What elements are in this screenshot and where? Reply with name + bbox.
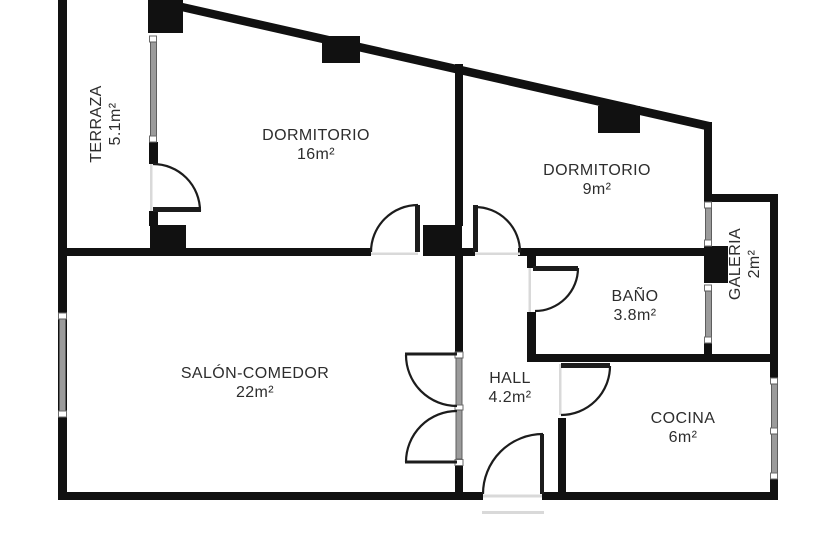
kitchen-window-cap-top [771,378,778,384]
wall-bedroom-divider [455,64,463,226]
gallery-window-lower-cap-bottom [705,337,712,343]
room-name: SALÓN-COMEDOR [181,364,329,383]
door-leaf-terraza [153,207,201,212]
door-arc-bedroom2 [475,207,520,252]
wall-hall-left-lower [455,465,463,500]
door-leaf-bathroom [533,266,578,271]
door-leaf-bedroom1 [415,205,420,252]
wall-main-horizontal-right [518,248,710,256]
terraza-window-cap-top [150,36,157,42]
floor-plan-drawing [0,0,835,540]
door-leaf-kitchen [561,363,610,368]
room-area: 6m² [651,428,716,447]
room-label-cocina: COCINA 6m² [651,409,716,447]
pillar-bedroom1-slant [322,36,360,63]
wall-main-horizontal-stub [455,248,475,256]
door-frame-lines-layer [150,164,562,514]
pillar-bedroom2-slant [598,106,640,133]
room-area: 16m² [262,145,370,164]
wall-main-horizontal-left [58,248,371,256]
wall-terraza-lower [149,211,158,226]
door-leaf-bedroom2 [473,205,478,252]
room-label-salon-comedor: SALÓN-COMEDOR 22m² [181,364,329,402]
salon-window-cap-bottom [59,411,67,417]
room-label-dormitorio-pequeno: DORMITORIO 9m² [543,161,651,199]
wall-hall-left-upper [455,256,463,354]
frame-line-bedroom2-opening [475,253,520,256]
gallery-window-upper-cap-bottom [705,240,712,246]
room-name: COCINA [651,409,716,428]
double-door-panel-top [456,358,462,405]
frame-line-kitchen-opening [559,364,562,415]
room-name: DORMITORIO [543,161,651,180]
entry-threshold-line [483,495,542,498]
wall-outer-bottom-right [542,492,778,500]
room-name: TERRAZA [87,85,106,162]
gallery-window-upper-cap-top [705,202,712,208]
door-arc-double-bottom [406,411,457,462]
terraza-window-cap-bottom [150,136,157,142]
gallery-window-upper [706,208,712,240]
kitchen-window-upper [772,384,778,428]
room-label-galeria: GALERIA 2m² [726,228,764,300]
door-leaf-double-bottom [405,461,457,464]
room-area: 2m² [745,228,764,300]
terraza-window [151,42,157,136]
kitchen-window-lower [772,434,778,473]
wall-bathroom-gallery-bottom [527,354,778,362]
room-area: 9m² [543,180,651,199]
salon-window [60,319,66,411]
wall-hall-kitchen [558,418,566,500]
room-label-hall: HALL 4.2m² [489,369,532,407]
door-arc-terraza [153,164,200,211]
room-area: 3.8m² [612,306,659,325]
wall-gallery-left-bottom [704,343,712,362]
gallery-window-lower-cap-top [705,285,712,291]
door-arc-bathroom [535,268,578,311]
room-name: DORMITORIO [262,126,370,145]
wall-terraza-upper [149,142,158,164]
frame-line-terraza-opening [150,164,153,211]
double-door-panel-bottom [456,410,462,459]
room-label-dormitorio-grande: DORMITORIO 16m² [262,126,370,164]
frame-line-bedroom1-opening [371,253,418,256]
room-name: HALL [489,369,532,388]
door-arc-entry [483,434,543,494]
room-label-terraza: TERRAZA 5.1m² [87,85,125,162]
wall-bedroom2-right [704,122,712,196]
salon-window-cap-top [59,313,67,319]
pillar-gallery [704,246,728,283]
kitchen-window-cap-bottom [771,473,778,479]
door-arc-bedroom1 [371,205,418,252]
kitchen-window-cap-middle [771,428,778,434]
door-leaf-entry [540,434,544,494]
entry-step-line [482,511,544,514]
pillar-terraza-top [148,0,183,33]
room-area: 22m² [181,383,329,402]
door-leaf-double-top [405,353,457,356]
gallery-window-lower [706,291,712,337]
door-arc-kitchen [561,366,610,415]
door-arc-double-top [406,355,457,406]
room-label-bano: BAÑO 3.8m² [612,287,659,325]
wall-kitchen-right-upper [770,362,778,379]
wall-gallery-right [770,194,778,363]
frame-line-bathroom-opening [529,268,532,312]
wall-outer-bottom-left [58,492,483,500]
floor-plan: TERRAZA 5.1m² DORMITORIO 16m² DORMITORIO… [0,0,835,540]
room-name: GALERIA [726,228,745,300]
wall-gallery-top [704,194,778,202]
wall-kitchen-right-lower [770,479,778,500]
wall-bathroom-left-bottom [527,312,536,354]
room-area: 5.1m² [106,85,125,162]
room-name: BAÑO [612,287,659,306]
room-area: 4.2m² [489,388,532,407]
